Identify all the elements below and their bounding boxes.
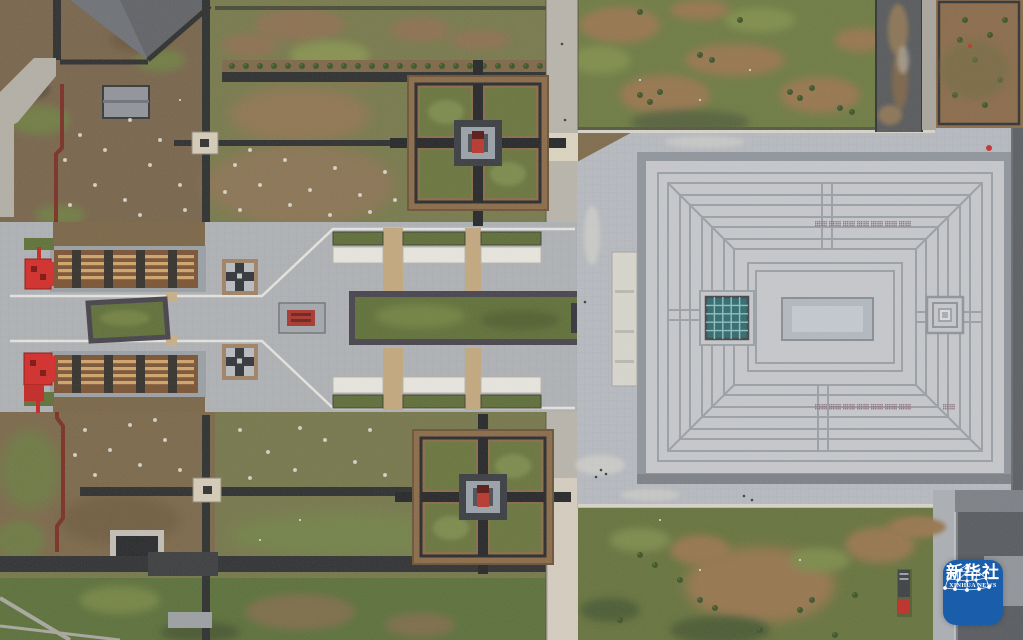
photo-scene [0, 0, 1023, 640]
aerial-photo: 新华社 XINHUA NEWS [0, 0, 1023, 640]
network-dome-icon [943, 562, 991, 592]
photo-grain [0, 0, 1023, 640]
xinhua-news-badge: 新华社 XINHUA NEWS [943, 560, 1003, 625]
